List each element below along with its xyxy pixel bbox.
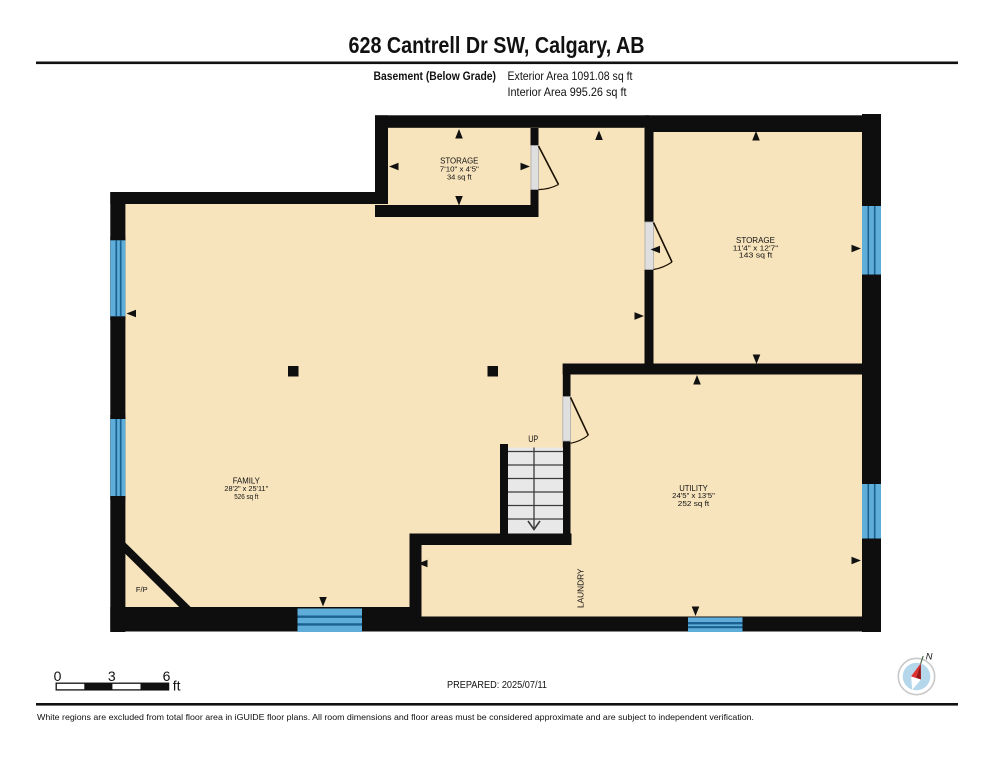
svg-text:628 Cantrell Dr SW, Calgary, A: 628 Cantrell Dr SW, Calgary, AB xyxy=(349,32,645,58)
svg-text:252 sq ft: 252 sq ft xyxy=(678,499,709,508)
svg-text:6: 6 xyxy=(163,668,171,684)
svg-text:526 sq ft: 526 sq ft xyxy=(234,492,258,501)
svg-text:0: 0 xyxy=(54,668,62,684)
svg-text:34 sq ft: 34 sq ft xyxy=(447,173,472,182)
svg-text:PREPARED: 2025/07/11: PREPARED: 2025/07/11 xyxy=(447,680,547,691)
svg-text:Basement (Below Grade): Basement (Below Grade) xyxy=(374,69,497,83)
svg-text:ft: ft xyxy=(173,678,181,694)
svg-text:Exterior Area 1091.08 sq ft: Exterior Area 1091.08 sq ft xyxy=(508,69,634,83)
svg-text:LAUNDRY: LAUNDRY xyxy=(577,568,586,608)
svg-text:3: 3 xyxy=(108,668,116,684)
svg-text:Interior Area 995.26 sq ft: Interior Area 995.26 sq ft xyxy=(508,85,628,99)
svg-text:143 sq ft: 143 sq ft xyxy=(739,251,773,260)
svg-text:N: N xyxy=(926,652,933,662)
svg-text:UP: UP xyxy=(528,434,538,444)
svg-text:F/P: F/P xyxy=(136,585,148,594)
svg-text:White regions are excluded fro: White regions are excluded from total fl… xyxy=(37,712,754,722)
